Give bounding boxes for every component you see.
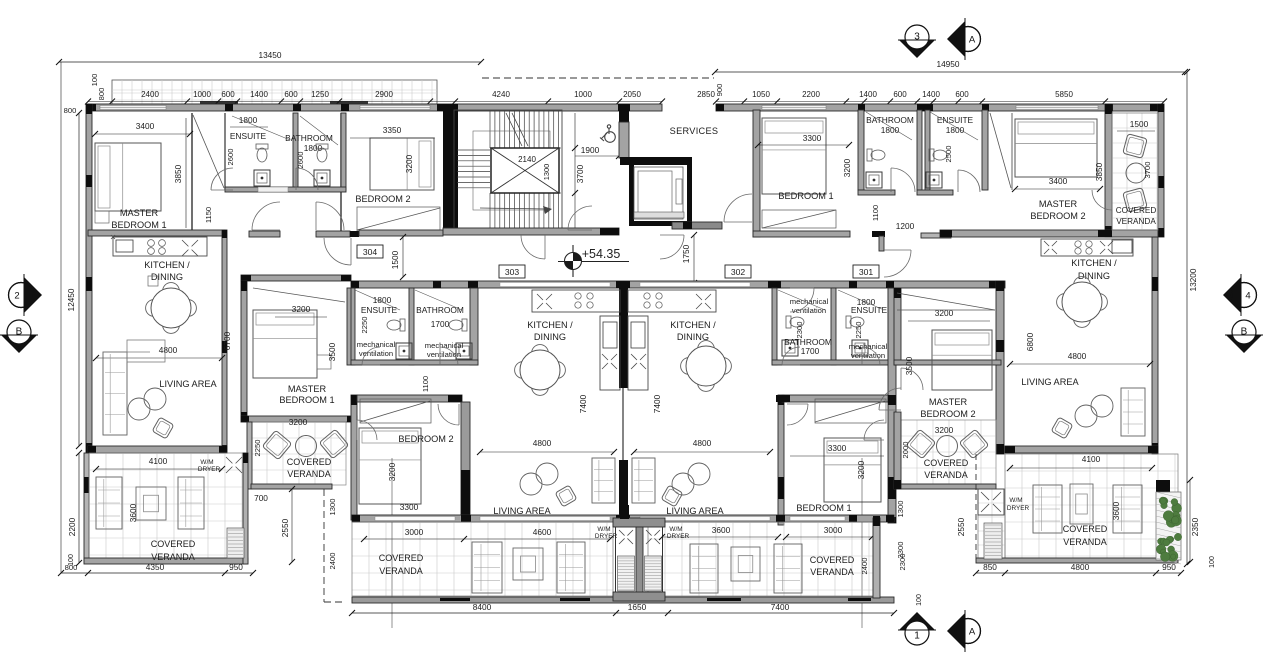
svg-text:5850: 5850 xyxy=(1055,90,1073,99)
svg-text:mechanical: mechanical xyxy=(790,297,829,306)
svg-text:2500: 2500 xyxy=(944,146,953,163)
svg-text:1100: 1100 xyxy=(421,376,430,392)
svg-text:3200: 3200 xyxy=(842,158,852,177)
svg-text:600: 600 xyxy=(893,90,907,99)
svg-text:7400: 7400 xyxy=(578,394,588,413)
svg-text:2300: 2300 xyxy=(795,322,804,339)
svg-text:100: 100 xyxy=(1209,556,1216,568)
svg-text:BATHROOM: BATHROOM xyxy=(416,305,464,315)
svg-text:2400: 2400 xyxy=(141,90,159,99)
svg-text:DRYER: DRYER xyxy=(198,466,221,473)
svg-text:SERVICES: SERVICES xyxy=(670,126,719,136)
svg-text:BEDROOM 2: BEDROOM 2 xyxy=(1030,211,1085,221)
svg-text:4350: 4350 xyxy=(146,562,165,572)
svg-text:COVERED: COVERED xyxy=(379,553,424,563)
svg-text:3600: 3600 xyxy=(128,503,138,522)
svg-text:1800: 1800 xyxy=(304,143,323,153)
svg-text:4240: 4240 xyxy=(492,90,510,99)
svg-text:1150: 1150 xyxy=(204,207,213,223)
svg-text:1050: 1050 xyxy=(752,90,770,99)
svg-text:13200: 13200 xyxy=(1188,268,1198,291)
svg-text:3000: 3000 xyxy=(824,525,843,535)
svg-text:1500: 1500 xyxy=(1130,119,1149,129)
svg-text:W/M: W/M xyxy=(200,459,213,466)
svg-text:1000: 1000 xyxy=(574,90,592,99)
svg-text:3: 3 xyxy=(914,32,920,43)
svg-text:COVERED: COVERED xyxy=(810,555,855,565)
svg-text:1800: 1800 xyxy=(373,295,392,305)
svg-text:4100: 4100 xyxy=(1082,454,1101,464)
svg-text:MASTER: MASTER xyxy=(120,208,159,218)
svg-text:ENSUITE: ENSUITE xyxy=(230,131,267,141)
svg-text:1400: 1400 xyxy=(250,90,268,99)
svg-text:2300: 2300 xyxy=(896,542,905,559)
svg-text:mechanical: mechanical xyxy=(849,342,888,351)
svg-text:COVERED: COVERED xyxy=(924,458,969,468)
svg-text:LIVING AREA: LIVING AREA xyxy=(666,506,724,516)
svg-text:13450: 13450 xyxy=(258,50,281,60)
svg-text:DINING: DINING xyxy=(151,272,183,282)
svg-text:2900: 2900 xyxy=(375,90,393,99)
svg-text:COVERED: COVERED xyxy=(1116,206,1157,215)
svg-text:800: 800 xyxy=(65,563,78,572)
svg-text:2850: 2850 xyxy=(697,90,715,99)
svg-text:4: 4 xyxy=(1245,291,1250,302)
svg-text:2400: 2400 xyxy=(328,553,337,570)
svg-text:6700: 6700 xyxy=(222,331,232,350)
svg-text:600: 600 xyxy=(284,90,298,99)
svg-text:800: 800 xyxy=(97,88,106,101)
svg-text:2400: 2400 xyxy=(860,558,869,575)
svg-text:COVERED: COVERED xyxy=(151,539,196,549)
svg-text:2250: 2250 xyxy=(360,317,369,334)
svg-text:BEDROOM 2: BEDROOM 2 xyxy=(920,409,975,419)
svg-text:VERANDA: VERANDA xyxy=(379,566,423,576)
svg-text:4800: 4800 xyxy=(693,438,712,448)
svg-text:7400: 7400 xyxy=(771,602,790,612)
svg-text:8400: 8400 xyxy=(473,602,492,612)
svg-text:KITCHEN /: KITCHEN / xyxy=(144,260,190,270)
svg-text:2250: 2250 xyxy=(854,322,863,339)
svg-text:100: 100 xyxy=(90,74,99,87)
svg-text:LIVING AREA: LIVING AREA xyxy=(159,379,217,389)
svg-text:3200: 3200 xyxy=(404,154,414,173)
svg-text:302: 302 xyxy=(731,267,746,277)
svg-text:800: 800 xyxy=(64,106,77,115)
svg-text:1900: 1900 xyxy=(581,145,600,155)
svg-text:4100: 4100 xyxy=(149,456,168,466)
svg-text:301: 301 xyxy=(859,267,874,277)
svg-text:3700: 3700 xyxy=(1143,162,1152,179)
svg-text:1750: 1750 xyxy=(681,244,691,263)
svg-text:100: 100 xyxy=(916,594,923,606)
svg-text:BEDROOM 2: BEDROOM 2 xyxy=(398,434,453,444)
svg-text:DRYER: DRYER xyxy=(667,533,690,540)
svg-text:1700: 1700 xyxy=(801,346,820,356)
svg-text:DINING: DINING xyxy=(534,332,566,342)
svg-text:MASTER: MASTER xyxy=(1039,199,1078,209)
svg-text:1300: 1300 xyxy=(542,164,551,180)
svg-text:2000: 2000 xyxy=(901,442,910,459)
svg-text:B: B xyxy=(16,327,23,338)
svg-text:DINING: DINING xyxy=(1078,271,1110,281)
svg-text:3300: 3300 xyxy=(400,502,419,512)
svg-text:2200: 2200 xyxy=(67,517,77,536)
svg-text:950: 950 xyxy=(1162,562,1176,572)
svg-text:4800: 4800 xyxy=(159,345,178,355)
svg-text:12450: 12450 xyxy=(66,288,76,311)
svg-text:2: 2 xyxy=(14,291,19,302)
svg-text:3500: 3500 xyxy=(904,356,914,375)
svg-text:3400: 3400 xyxy=(1049,176,1068,186)
svg-text:3350: 3350 xyxy=(383,125,402,135)
svg-text:mechanical: mechanical xyxy=(425,341,464,350)
svg-text:VERANDA: VERANDA xyxy=(1063,537,1107,547)
svg-text:7400: 7400 xyxy=(652,394,662,413)
svg-text:3200: 3200 xyxy=(935,425,954,435)
svg-text:2250: 2250 xyxy=(253,440,262,457)
svg-text:1400: 1400 xyxy=(859,90,877,99)
svg-text:3300: 3300 xyxy=(803,133,822,143)
svg-text:3600: 3600 xyxy=(712,525,731,535)
svg-text:+54.35: +54.35 xyxy=(582,247,621,261)
svg-text:LIVING AREA: LIVING AREA xyxy=(493,506,551,516)
svg-text:304: 304 xyxy=(363,247,378,257)
svg-text:DRYER: DRYER xyxy=(595,533,618,540)
svg-text:ventilation: ventilation xyxy=(792,306,826,315)
svg-text:1100: 1100 xyxy=(871,205,880,221)
svg-text:BEDROOM 1: BEDROOM 1 xyxy=(778,191,833,201)
svg-text:BEDROOM 1: BEDROOM 1 xyxy=(111,220,166,230)
svg-text:600: 600 xyxy=(955,90,969,99)
svg-text:MASTER: MASTER xyxy=(288,384,327,394)
svg-text:14950: 14950 xyxy=(936,59,959,69)
svg-text:950: 950 xyxy=(229,562,243,572)
svg-text:2550: 2550 xyxy=(956,517,966,536)
svg-text:1650: 1650 xyxy=(628,602,647,612)
svg-text:3850: 3850 xyxy=(1094,162,1104,181)
svg-text:700: 700 xyxy=(254,493,268,503)
svg-text:3000: 3000 xyxy=(405,527,424,537)
svg-text:A: A xyxy=(969,627,976,638)
svg-text:VERANDA: VERANDA xyxy=(1116,217,1156,226)
svg-text:2200: 2200 xyxy=(802,90,820,99)
svg-text:3200: 3200 xyxy=(292,304,311,314)
svg-text:VERANDA: VERANDA xyxy=(287,469,331,479)
svg-text:DRYER: DRYER xyxy=(1007,505,1030,512)
svg-text:1200: 1200 xyxy=(896,221,915,231)
svg-text:VERANDA: VERANDA xyxy=(810,567,854,577)
svg-text:COVERED: COVERED xyxy=(287,457,332,467)
svg-text:BEDROOM 1: BEDROOM 1 xyxy=(796,503,851,513)
svg-text:600: 600 xyxy=(221,90,235,99)
svg-text:LIVING AREA: LIVING AREA xyxy=(1021,377,1079,387)
svg-text:850: 850 xyxy=(983,562,997,572)
svg-text:4800: 4800 xyxy=(533,438,552,448)
svg-text:1400: 1400 xyxy=(922,90,940,99)
svg-text:ENSUITE: ENSUITE xyxy=(937,115,974,125)
svg-text:2350: 2350 xyxy=(1190,517,1200,536)
svg-text:1500: 1500 xyxy=(390,250,400,269)
svg-text:4800: 4800 xyxy=(1071,562,1090,572)
svg-text:1: 1 xyxy=(914,631,920,642)
svg-text:VERANDA: VERANDA xyxy=(924,470,968,480)
svg-text:1300: 1300 xyxy=(328,499,337,516)
svg-text:W/M: W/M xyxy=(597,526,610,533)
svg-text:KITCHEN /: KITCHEN / xyxy=(1071,258,1117,268)
svg-text:1700: 1700 xyxy=(431,319,450,329)
svg-text:3200: 3200 xyxy=(289,417,308,427)
svg-text:ventilation: ventilation xyxy=(427,350,461,359)
svg-text:VERANDA: VERANDA xyxy=(151,552,195,562)
svg-text:3200: 3200 xyxy=(856,460,866,479)
svg-text:KITCHEN /: KITCHEN / xyxy=(527,320,573,330)
svg-text:COVERED: COVERED xyxy=(1063,524,1108,534)
svg-text:6800: 6800 xyxy=(1025,332,1035,351)
svg-text:A: A xyxy=(969,35,976,46)
svg-text:KITCHEN /: KITCHEN / xyxy=(670,320,716,330)
svg-text:BATHROOM: BATHROOM xyxy=(285,133,333,143)
svg-text:4800: 4800 xyxy=(1068,351,1087,361)
svg-text:2600: 2600 xyxy=(226,149,235,166)
svg-text:ventilation: ventilation xyxy=(851,351,885,360)
svg-text:3850: 3850 xyxy=(173,164,183,183)
svg-text:W/M: W/M xyxy=(1009,497,1022,504)
svg-text:B: B xyxy=(1241,327,1248,338)
svg-text:2550: 2550 xyxy=(280,518,290,537)
svg-text:3600: 3600 xyxy=(1111,501,1121,520)
svg-text:3400: 3400 xyxy=(136,121,155,131)
svg-text:3200: 3200 xyxy=(935,308,954,318)
svg-text:3700: 3700 xyxy=(575,164,585,183)
svg-text:303: 303 xyxy=(505,267,520,277)
svg-text:3500: 3500 xyxy=(327,342,337,361)
svg-text:2140: 2140 xyxy=(518,155,536,164)
svg-text:4600: 4600 xyxy=(533,527,552,537)
svg-text:1000: 1000 xyxy=(193,90,211,99)
svg-text:2600: 2600 xyxy=(296,152,305,169)
svg-text:BEDROOM 2: BEDROOM 2 xyxy=(355,194,410,204)
svg-text:1250: 1250 xyxy=(311,90,329,99)
svg-text:W/M: W/M xyxy=(669,526,682,533)
svg-text:MASTER: MASTER xyxy=(929,397,968,407)
svg-text:1300: 1300 xyxy=(896,501,905,518)
svg-text:3300: 3300 xyxy=(828,443,847,453)
svg-text:2050: 2050 xyxy=(623,90,641,99)
svg-text:900: 900 xyxy=(715,84,724,97)
svg-text:BEDROOM 1: BEDROOM 1 xyxy=(279,395,334,405)
